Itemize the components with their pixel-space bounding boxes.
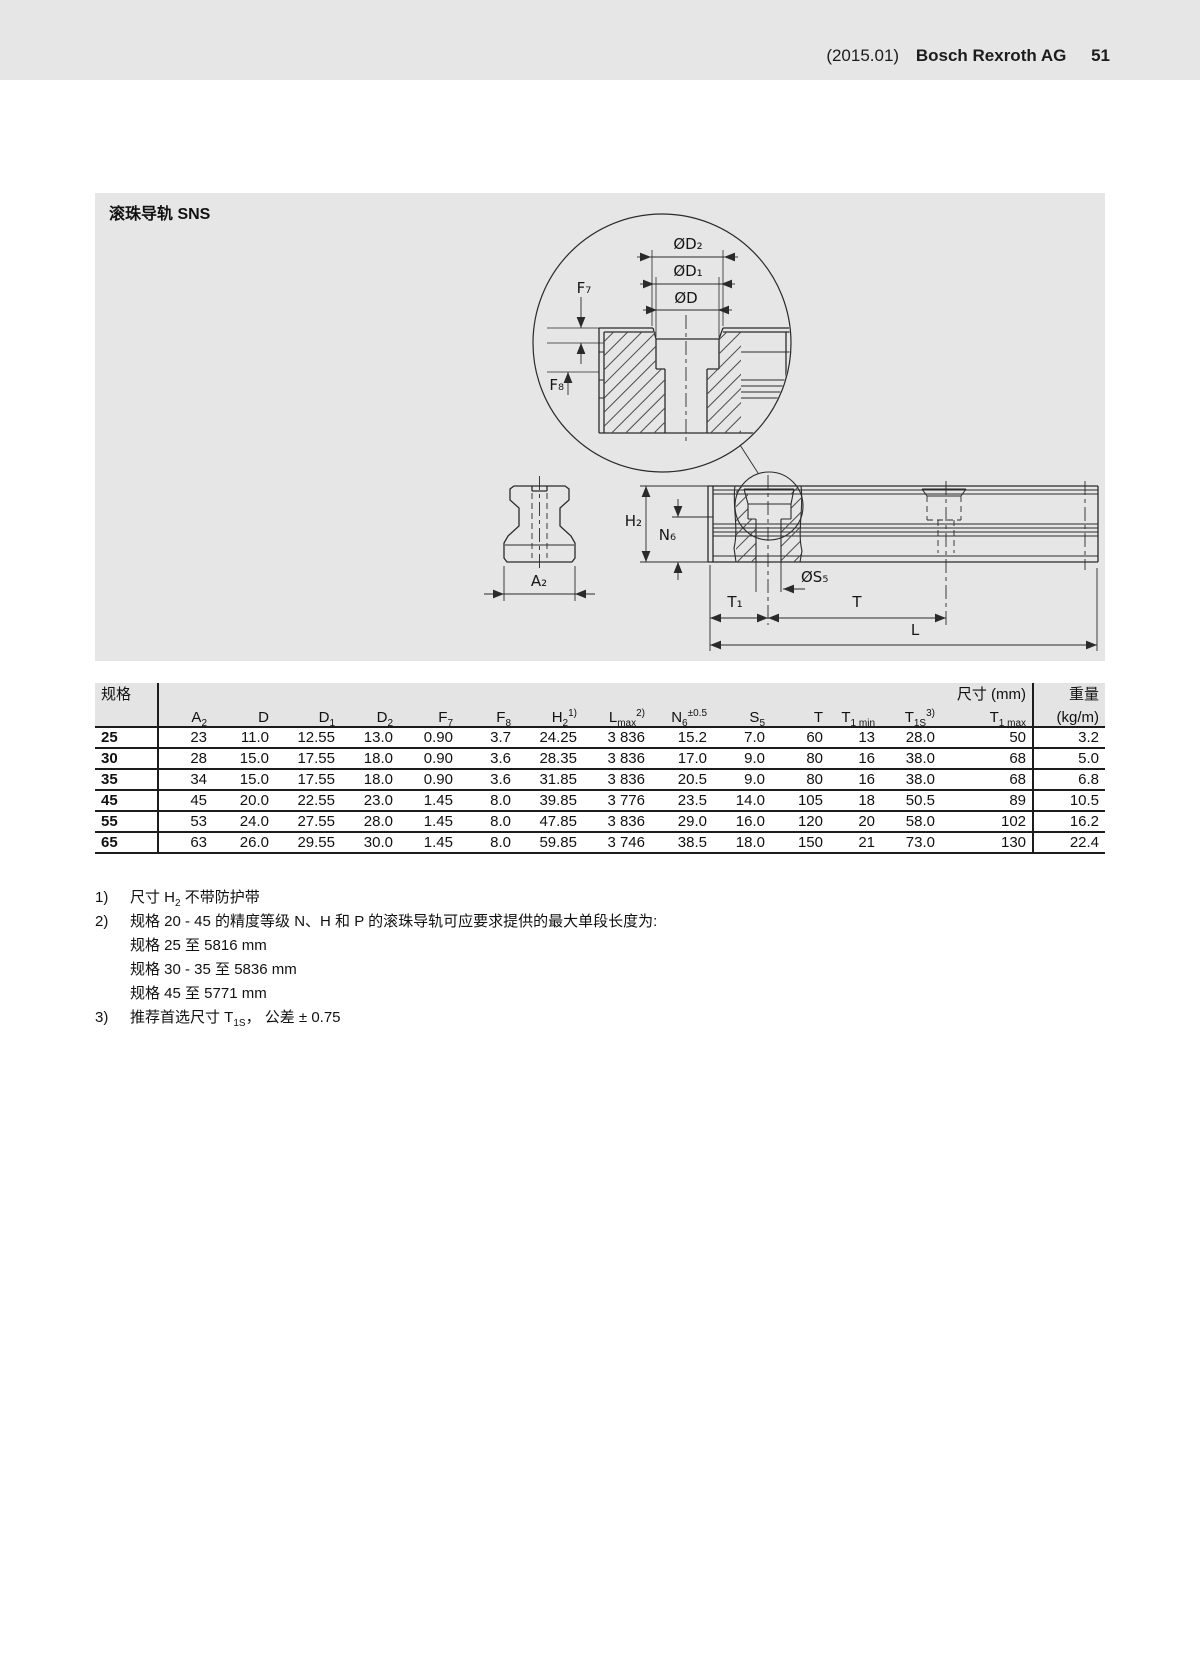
dim-label-od2: ØD₂ xyxy=(673,235,702,253)
value-cell: 18.0 xyxy=(341,769,399,790)
table-row: 656326.029.5530.01.458.059.853 74638.518… xyxy=(95,832,1105,853)
dim-label-od: ØD xyxy=(674,289,697,307)
footnote-marker: 3) xyxy=(95,1006,130,1030)
footnote-line: 1)尺寸 H2 不带防护带 xyxy=(95,886,657,910)
dim-label-f8: F₈ xyxy=(549,376,564,394)
value-cell: 3 746 xyxy=(583,832,651,853)
weight-unit: (kg/m) xyxy=(1033,705,1105,727)
value-cell: 1.45 xyxy=(399,811,459,832)
value-cell: 58.0 xyxy=(881,811,941,832)
dim-label-t1: T₁ xyxy=(726,593,742,611)
footnote-text: 推荐首选尺寸 T1S， 公差 ± 0.75 xyxy=(130,1006,341,1030)
spec-header: 规格 xyxy=(95,683,158,705)
value-cell: 9.0 xyxy=(713,769,771,790)
column-header: T1 min xyxy=(829,705,881,727)
dim-label-h2: H₂ xyxy=(625,512,642,530)
table-row: 252311.012.5513.00.903.724.253 83615.27.… xyxy=(95,727,1105,748)
value-cell: 47.85 xyxy=(517,811,583,832)
spec-cell: 55 xyxy=(95,811,158,832)
dim-label-n6: N₆ xyxy=(659,526,676,544)
weight-header: 重量 xyxy=(1033,683,1105,705)
value-cell: 3 836 xyxy=(583,748,651,769)
value-cell: 16.0 xyxy=(713,811,771,832)
dim-label-os5: ØS₅ xyxy=(801,568,828,586)
footnote-marker: 1) xyxy=(95,886,130,910)
column-header: F8 xyxy=(459,705,517,727)
value-cell: 68 xyxy=(941,748,1033,769)
value-cell: 17.55 xyxy=(275,748,341,769)
weight-cell: 3.2 xyxy=(1033,727,1105,748)
value-cell: 22.55 xyxy=(275,790,341,811)
value-cell: 34 xyxy=(158,769,213,790)
value-cell: 50.5 xyxy=(881,790,941,811)
weight-cell: 6.8 xyxy=(1033,769,1105,790)
dim-label-t: T xyxy=(851,593,862,611)
value-cell: 21 xyxy=(829,832,881,853)
value-cell: 120 xyxy=(771,811,829,832)
table-header-row: 规格 尺寸 (mm) 重量 xyxy=(95,683,1105,705)
value-cell: 0.90 xyxy=(399,748,459,769)
column-header: D2 xyxy=(341,705,399,727)
value-cell: 38.5 xyxy=(651,832,713,853)
value-cell: 28.0 xyxy=(881,727,941,748)
value-cell: 15.0 xyxy=(213,748,275,769)
page-header: (2015.01) Bosch Rexroth AG 51 xyxy=(826,46,1110,66)
value-cell: 12.55 xyxy=(275,727,341,748)
page-number: 51 xyxy=(1091,46,1110,65)
footnote-line: 3)推荐首选尺寸 T1S， 公差 ± 0.75 xyxy=(95,1006,657,1030)
value-cell: 20 xyxy=(829,811,881,832)
value-cell: 20.5 xyxy=(651,769,713,790)
footnote-text: 规格 25 至 5816 mm xyxy=(130,934,267,958)
weight-cell: 5.0 xyxy=(1033,748,1105,769)
value-cell: 80 xyxy=(771,769,829,790)
value-cell: 3 836 xyxy=(583,727,651,748)
value-cell: 1.45 xyxy=(399,790,459,811)
column-header: T xyxy=(771,705,829,727)
dim-label-l: L xyxy=(911,621,920,639)
spec-cell: 35 xyxy=(95,769,158,790)
footnote-text: 规格 30 - 35 至 5836 mm xyxy=(130,958,297,982)
weight-cell: 22.4 xyxy=(1033,832,1105,853)
column-header: D xyxy=(213,705,275,727)
value-cell: 60 xyxy=(771,727,829,748)
value-cell: 30.0 xyxy=(341,832,399,853)
value-cell: 15.0 xyxy=(213,769,275,790)
weight-cell: 16.2 xyxy=(1033,811,1105,832)
value-cell: 50 xyxy=(941,727,1033,748)
value-cell: 105 xyxy=(771,790,829,811)
value-cell: 7.0 xyxy=(713,727,771,748)
value-cell: 29.0 xyxy=(651,811,713,832)
value-cell: 23 xyxy=(158,727,213,748)
value-cell: 11.0 xyxy=(213,727,275,748)
catalog-page: (2015.01) Bosch Rexroth AG 51 滚珠导轨 SNS xyxy=(0,0,1200,1658)
figure-box: 滚珠导轨 SNS xyxy=(95,193,1105,661)
table-row: 454520.022.5523.01.458.039.853 77623.514… xyxy=(95,790,1105,811)
table-row: 353415.017.5518.00.903.631.853 83620.59.… xyxy=(95,769,1105,790)
value-cell: 53 xyxy=(158,811,213,832)
value-cell: 23.5 xyxy=(651,790,713,811)
spec-cell: 65 xyxy=(95,832,158,853)
value-cell: 17.0 xyxy=(651,748,713,769)
edition-date: (2015.01) xyxy=(826,46,899,65)
value-cell: 15.2 xyxy=(651,727,713,748)
value-cell: 16 xyxy=(829,748,881,769)
footnote-marker xyxy=(95,958,130,982)
value-cell: 8.0 xyxy=(459,832,517,853)
footnote-line: 2)规格 20 - 45 的精度等级 N、H 和 P 的滚珠导轨可应要求提供的最… xyxy=(95,910,657,934)
footnote-text: 尺寸 H2 不带防护带 xyxy=(130,886,260,910)
column-header: F7 xyxy=(399,705,459,727)
value-cell: 27.55 xyxy=(275,811,341,832)
value-cell: 31.85 xyxy=(517,769,583,790)
value-cell: 39.85 xyxy=(517,790,583,811)
value-cell: 80 xyxy=(771,748,829,769)
weight-cell: 10.5 xyxy=(1033,790,1105,811)
footnote-line: 规格 45 至 5771 mm xyxy=(95,982,657,1006)
footnote-marker xyxy=(95,934,130,958)
dim-label-a2: A₂ xyxy=(531,572,547,590)
value-cell: 1.45 xyxy=(399,832,459,853)
value-cell: 14.0 xyxy=(713,790,771,811)
value-cell: 3.7 xyxy=(459,727,517,748)
value-cell: 28.0 xyxy=(341,811,399,832)
value-cell: 26.0 xyxy=(213,832,275,853)
column-header: S5 xyxy=(713,705,771,727)
column-header: N6±0.5 xyxy=(651,705,713,727)
table-row: 555324.027.5528.01.458.047.853 83629.016… xyxy=(95,811,1105,832)
footnote-text: 规格 45 至 5771 mm xyxy=(130,982,267,1006)
value-cell: 0.90 xyxy=(399,727,459,748)
value-cell: 23.0 xyxy=(341,790,399,811)
technical-drawing: ØD₂ ØD₁ ØD F₇ F₈ H₂ N₆ ØS₅ T₁ T L A₂ xyxy=(95,193,1105,661)
dim-label-od1: ØD₁ xyxy=(673,262,702,280)
spec-cell: 30 xyxy=(95,748,158,769)
footnote-marker: 2) xyxy=(95,910,130,934)
footnote-line: 规格 30 - 35 至 5836 mm xyxy=(95,958,657,982)
value-cell: 8.0 xyxy=(459,811,517,832)
value-cell: 28 xyxy=(158,748,213,769)
value-cell: 20.0 xyxy=(213,790,275,811)
value-cell: 3.6 xyxy=(459,748,517,769)
company-name: Bosch Rexroth AG xyxy=(916,46,1067,65)
value-cell: 17.55 xyxy=(275,769,341,790)
column-header: A2 xyxy=(158,705,213,727)
dim-label-f7: F₇ xyxy=(577,279,592,297)
value-cell: 3.6 xyxy=(459,769,517,790)
spec-subheader xyxy=(95,705,158,727)
value-cell: 24.0 xyxy=(213,811,275,832)
dimension-table: 规格 尺寸 (mm) 重量 A2DD1D2F7F8H21)Lmax2)N6±0.… xyxy=(95,683,1105,854)
size-header: 尺寸 (mm) xyxy=(158,683,1033,705)
spec-cell: 25 xyxy=(95,727,158,748)
value-cell: 29.55 xyxy=(275,832,341,853)
footnote-line: 规格 25 至 5816 mm xyxy=(95,934,657,958)
value-cell: 73.0 xyxy=(881,832,941,853)
footnote-marker xyxy=(95,982,130,1006)
value-cell: 150 xyxy=(771,832,829,853)
column-header: Lmax2) xyxy=(583,705,651,727)
footnote-text: 规格 20 - 45 的精度等级 N、H 和 P 的滚珠导轨可应要求提供的最大单… xyxy=(130,910,657,934)
spec-cell: 45 xyxy=(95,790,158,811)
value-cell: 3 836 xyxy=(583,811,651,832)
value-cell: 16 xyxy=(829,769,881,790)
value-cell: 24.25 xyxy=(517,727,583,748)
value-cell: 9.0 xyxy=(713,748,771,769)
value-cell: 38.0 xyxy=(881,769,941,790)
value-cell: 130 xyxy=(941,832,1033,853)
value-cell: 13.0 xyxy=(341,727,399,748)
value-cell: 68 xyxy=(941,769,1033,790)
value-cell: 45 xyxy=(158,790,213,811)
value-cell: 18.0 xyxy=(713,832,771,853)
value-cell: 3 836 xyxy=(583,769,651,790)
top-band xyxy=(0,0,1200,80)
value-cell: 28.35 xyxy=(517,748,583,769)
value-cell: 18.0 xyxy=(341,748,399,769)
value-cell: 18 xyxy=(829,790,881,811)
value-cell: 13 xyxy=(829,727,881,748)
value-cell: 8.0 xyxy=(459,790,517,811)
value-cell: 89 xyxy=(941,790,1033,811)
column-header: H21) xyxy=(517,705,583,727)
value-cell: 38.0 xyxy=(881,748,941,769)
table-row: 302815.017.5518.00.903.628.353 83617.09.… xyxy=(95,748,1105,769)
footnotes: 1)尺寸 H2 不带防护带2)规格 20 - 45 的精度等级 N、H 和 P … xyxy=(95,886,657,1030)
value-cell: 3 776 xyxy=(583,790,651,811)
column-header: T1 max xyxy=(941,705,1033,727)
value-cell: 59.85 xyxy=(517,832,583,853)
column-header: T1S3) xyxy=(881,705,941,727)
value-cell: 102 xyxy=(941,811,1033,832)
value-cell: 0.90 xyxy=(399,769,459,790)
value-cell: 63 xyxy=(158,832,213,853)
table-subheader-row: A2DD1D2F7F8H21)Lmax2)N6±0.5S5TT1 minT1S3… xyxy=(95,705,1105,727)
column-header: D1 xyxy=(275,705,341,727)
